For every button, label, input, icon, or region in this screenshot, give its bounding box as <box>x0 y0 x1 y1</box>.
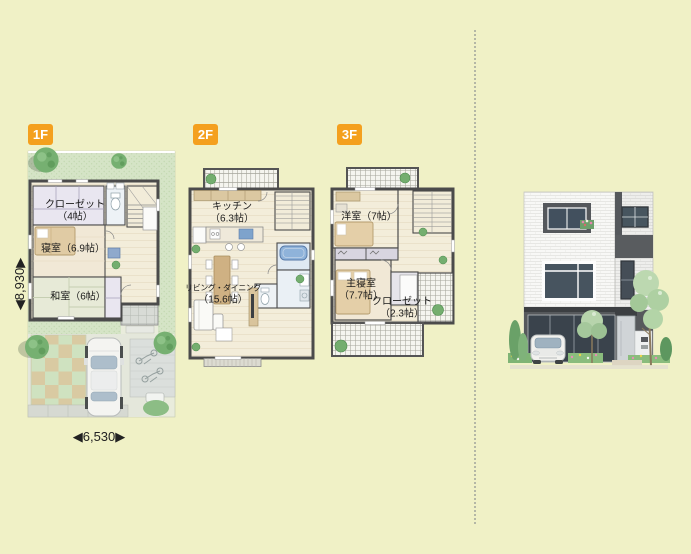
room-label-line: クローゼット <box>45 200 105 212</box>
sofa-icon <box>213 314 223 330</box>
washing-machine-icon <box>300 290 309 301</box>
wash-basin-icon <box>108 248 120 258</box>
room-label-line: （15.6帖） <box>185 294 261 306</box>
plant-icon <box>192 343 200 351</box>
desk-icon <box>336 192 360 201</box>
tree-icon <box>111 153 127 169</box>
ground-line <box>510 365 668 369</box>
floor-plan-3f <box>325 160 460 365</box>
stool-icon <box>226 244 233 251</box>
floor-plan-2f <box>183 160 323 370</box>
plant-icon <box>112 261 120 269</box>
bush-icon <box>143 400 169 416</box>
room-label-line: （2.3帖） <box>372 308 432 320</box>
label-japanese-room-1f: 和室（6帖） <box>50 291 106 303</box>
plant-icon <box>296 275 304 283</box>
dimension-depth: ◀8,930▶ <box>12 258 28 311</box>
plant-icon <box>419 228 427 236</box>
accent-band <box>615 235 653 258</box>
label-closet-1f: クローゼット （4帖） <box>45 200 105 223</box>
room-closet-strip-1f <box>105 277 121 318</box>
plant-icon <box>433 305 444 316</box>
dotted-separator <box>474 30 476 524</box>
room-label-line: （4帖） <box>45 211 105 223</box>
balcony-bottom-3f <box>332 323 423 356</box>
stairs-3f <box>413 191 452 233</box>
house-exterior-illustration <box>508 183 673 378</box>
balcony-top-3f <box>347 168 418 189</box>
hall-storage <box>143 207 157 230</box>
room-label-line: 寝室（6.9帖） <box>41 243 105 255</box>
tree-icon <box>154 332 177 355</box>
bush-icon <box>660 337 672 361</box>
room-label-line: キッチン <box>210 202 254 214</box>
eave <box>524 307 615 312</box>
house-plan-sheet: 1F 2F 3F クローゼット （4帖） 寝室（6.9帖） 和室（6帖） キッチ… <box>0 0 691 554</box>
plant-icon <box>400 173 410 183</box>
window-2f <box>542 261 596 301</box>
plant-icon <box>192 245 200 253</box>
label-living-dining-2f: リビング・ダイニング （15.6帖） <box>185 283 261 306</box>
fridge-icon <box>193 227 206 243</box>
label-bedroom-1f: 寝室（6.9帖） <box>41 243 105 255</box>
balcony-2f <box>204 169 278 189</box>
car-icon <box>531 335 565 364</box>
label-western-room-3f: 洋室（7帖） <box>341 211 397 223</box>
stairs-2f <box>275 192 310 230</box>
accent-panel <box>615 192 622 238</box>
window-2f-right <box>621 261 634 299</box>
plant-icon <box>439 256 447 264</box>
porch-step <box>126 326 154 333</box>
sink-icon <box>239 229 253 239</box>
toilet-icon <box>111 193 120 210</box>
room-label-line: （6.3帖） <box>210 213 254 225</box>
plant-icon <box>335 340 347 352</box>
floor-badge-1f: 1F <box>28 124 53 145</box>
entrance-porch <box>121 305 158 325</box>
tree-icon <box>33 147 58 172</box>
floor-plan-1f <box>18 115 183 450</box>
window-3f-right <box>622 207 648 227</box>
room-label-line: 和室（6帖） <box>50 291 106 303</box>
entrance-door <box>617 316 635 361</box>
tree-icon <box>25 335 49 359</box>
coffee-table-icon <box>216 328 232 341</box>
floor-badge-2f: 2F <box>193 124 218 145</box>
room-label-line: 洋室（7帖） <box>341 211 397 223</box>
intercom-icon <box>641 337 648 342</box>
label-kitchen-2f: キッチン （6.3帖） <box>210 202 254 225</box>
wic-3f <box>335 248 398 260</box>
room-label-line: 主寝室 <box>339 279 383 291</box>
flower-box-icon <box>580 220 594 229</box>
stool-icon <box>238 244 245 251</box>
washroom-2f <box>277 270 310 308</box>
plant-icon <box>206 174 216 184</box>
car-icon <box>84 338 124 416</box>
label-closet-3f: クローゼット （2.3帖） <box>372 297 432 320</box>
bathroom-2f <box>277 243 310 270</box>
floor-badge-3f: 3F <box>337 124 362 145</box>
dimension-width: ◀6,530▶ <box>73 429 126 445</box>
room-label-line: クローゼット <box>372 297 432 309</box>
toilet-icon <box>261 294 269 305</box>
washroom-1f <box>106 183 125 225</box>
room-label-line: リビング・ダイニング <box>185 283 261 295</box>
kitchen-counter <box>194 191 261 201</box>
bed-icon <box>335 222 373 246</box>
